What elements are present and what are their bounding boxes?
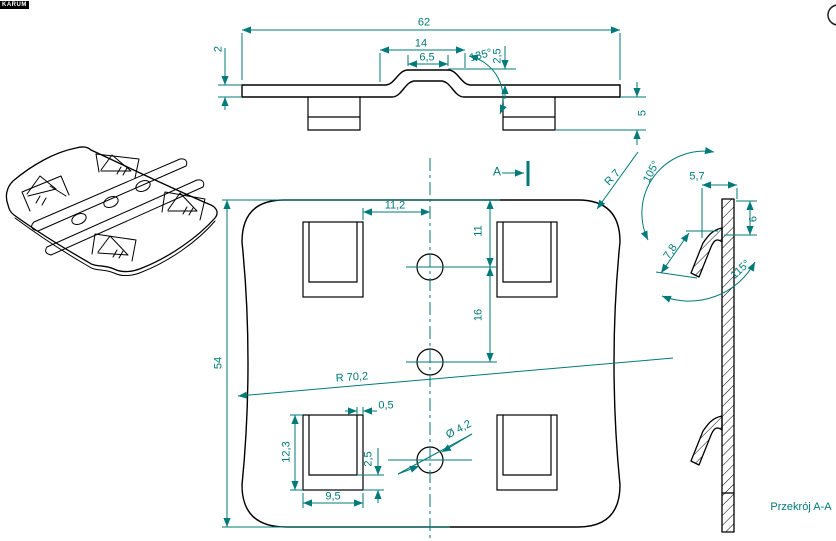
dim-plan-slot-width: 0,5 — [378, 401, 393, 412]
dim-plan-slot-to-center: 11,2 — [385, 201, 406, 212]
drawing-canvas — [0, 0, 836, 541]
dim-plan-cutout-bottom-gap: 2,5 — [364, 451, 375, 466]
dim-front-bump-width: 14 — [415, 39, 427, 50]
front-view-dimensions — [218, 30, 646, 145]
dim-front-thickness: 2 — [214, 46, 225, 52]
sheet-corner-circle — [828, 5, 836, 25]
title-block-label: KARUM — [0, 1, 29, 9]
section-view-label: Przekrój A-A — [770, 501, 831, 513]
dim-section-tab-offset: 5,7 — [689, 172, 704, 183]
dim-section-tab-top-distance: 6 — [749, 216, 760, 222]
dim-plan-hole-pitch: 16 — [474, 309, 485, 321]
dim-front-width: 62 — [418, 18, 430, 29]
dim-front-bump-flat: 6,5 — [419, 53, 434, 64]
plan-view-linework — [242, 200, 620, 527]
plan-view-dimensions — [222, 152, 673, 541]
dim-front-tab-drop: 5 — [638, 110, 649, 116]
dim-plan-cutout-height: 12,3 — [282, 441, 293, 462]
dim-plan-cutout-width: 9,5 — [325, 492, 340, 503]
dim-front-bump-height: 2,5 — [493, 48, 504, 63]
dim-plan-height: 54 — [214, 357, 225, 369]
section-cut-marker: A — [493, 167, 501, 178]
iso-view-linework — [6, 147, 217, 276]
front-view-linework — [242, 70, 620, 130]
drawing-sheet: KARUM 62 14 6,5 135° 2,5 2 5 11,2 11 16 … — [0, 0, 836, 541]
dim-plan-side-radius: R 70,2 — [335, 371, 368, 384]
section-view-linework — [691, 199, 734, 532]
dim-plan-hole-top-offset: 11 — [474, 225, 485, 236]
